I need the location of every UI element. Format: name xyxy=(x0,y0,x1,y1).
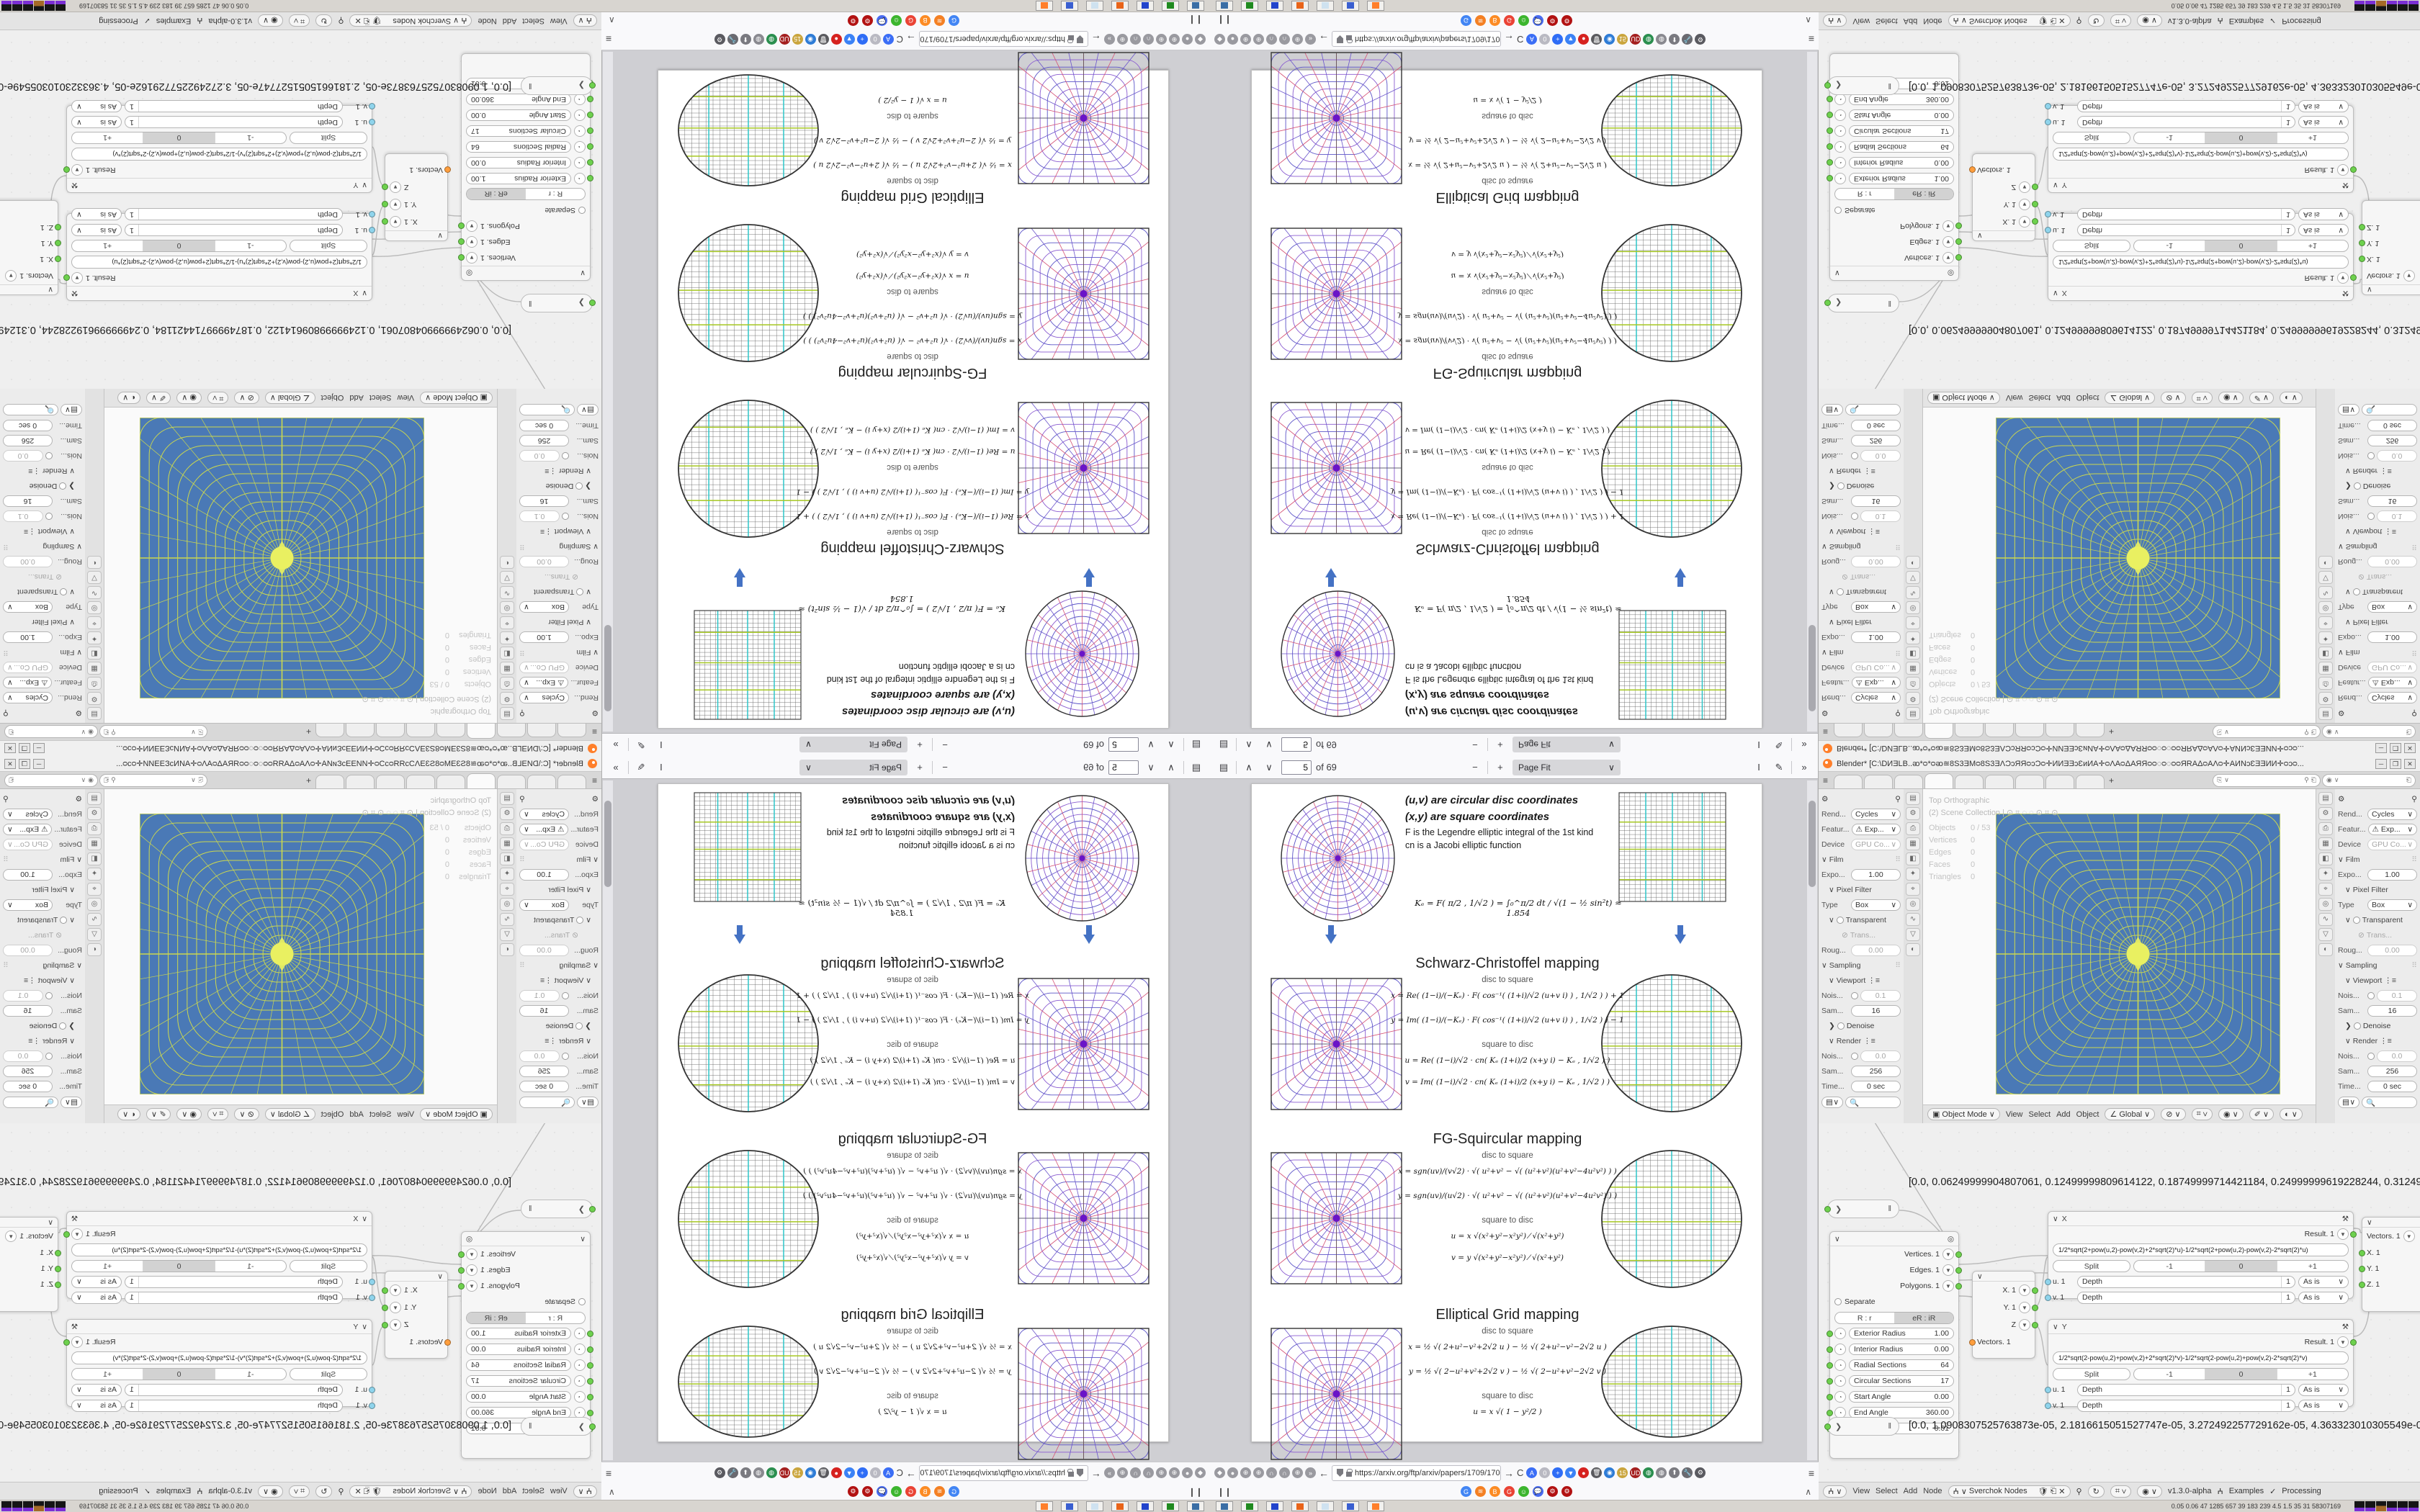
pin-icon[interactable]: ⚲ xyxy=(2411,795,2417,804)
scene-selector[interactable]: ⎘∨⚲⎗ xyxy=(2213,774,2321,787)
bookmark-icon[interactable]: B xyxy=(920,1486,931,1497)
render-samples-field[interactable]: 256 xyxy=(519,1066,569,1077)
overlays-button[interactable]: ◐ ∨ xyxy=(2280,392,2303,404)
bookmark-icon[interactable]: G xyxy=(1461,1486,1471,1497)
next-page-button[interactable]: ∨ xyxy=(1143,737,1159,753)
exposure-field[interactable]: 1.00 xyxy=(519,632,569,644)
workspace-tab-active[interactable] xyxy=(467,724,496,739)
collapsed-node[interactable]: ❯‖ xyxy=(521,1417,593,1436)
node-param-slider[interactable]: Exterior Radius1.00 xyxy=(1849,173,1954,184)
extension-icon[interactable]: ◍ xyxy=(1643,1467,1654,1478)
extension-icon[interactable]: UD xyxy=(1630,34,1641,45)
time-limit-field[interactable]: 0 sec xyxy=(3,1081,53,1092)
transparent-section[interactable]: Transparent xyxy=(1846,588,1886,597)
extension-icon[interactable]: 0 xyxy=(1539,34,1550,45)
sidebar-toggle-icon[interactable]: ▤ xyxy=(1216,737,1232,753)
menu-view[interactable]: View xyxy=(2006,394,2023,402)
film-section[interactable]: Film xyxy=(576,649,591,657)
formula-input[interactable]: 1/2*sqrt(2-pow(u,2)+pow(v,2)+2*sqrt(2)*v… xyxy=(2053,1351,2349,1364)
exposure-field[interactable]: 1.00 xyxy=(1851,632,1901,644)
properties-search-input[interactable]: 🔍 xyxy=(3,1097,58,1108)
properties-tab-icon[interactable]: ✦ xyxy=(1906,631,1920,644)
taskbar-app-icon[interactable] xyxy=(1367,1,1384,11)
close-button[interactable]: ✕ xyxy=(2404,759,2416,769)
add-workspace-button[interactable]: + xyxy=(2109,775,2114,786)
collapse-icon[interactable]: ∧ xyxy=(1805,1487,1811,1497)
draw-tool-icon[interactable]: ✎ xyxy=(633,737,649,753)
examples-menu[interactable]: Examples xyxy=(2229,1487,2264,1495)
properties-tab-icon[interactable]: ⎙ xyxy=(1906,822,1920,835)
previous-page-button[interactable]: ∧ xyxy=(1163,760,1179,775)
workspace-tab[interactable] xyxy=(1894,724,1923,737)
split-button[interactable]: Split xyxy=(2053,1368,2130,1380)
extension-icon[interactable]: ◍ xyxy=(1656,1467,1667,1478)
rescan-button[interactable]: ↻ xyxy=(2088,15,2105,27)
node-param-slider[interactable]: Interior Radius0.00 xyxy=(466,157,571,168)
properties-tab-icon[interactable]: ⎙ xyxy=(2318,822,2333,835)
extension-icon[interactable]: + xyxy=(1552,34,1563,45)
transparent-checkbox[interactable] xyxy=(576,917,583,924)
split-button[interactable]: Split xyxy=(2053,1260,2130,1272)
workspace-tab[interactable] xyxy=(1955,775,1984,788)
extension-icon[interactable]: ◆ xyxy=(1214,34,1225,45)
scene-selector[interactable]: ⎘∨⚲⎗ xyxy=(2213,726,2321,739)
film-section[interactable]: Film xyxy=(60,649,74,657)
taskbar-app-icon[interactable] xyxy=(1061,1,1078,11)
collapse-icon[interactable]: ∧ xyxy=(1805,16,1811,26)
split-button[interactable]: Split xyxy=(290,1368,367,1380)
url-bar[interactable]: https://arxiv.org/ftp/arxiv/papers/1709/… xyxy=(919,32,1088,48)
extension-icon[interactable]: ⊕ xyxy=(1169,34,1180,45)
bookmark-icon[interactable]: ⚙ xyxy=(848,15,859,26)
renderer-select[interactable]: Cycles∨ xyxy=(1851,693,1901,704)
collapsed-node[interactable]: ❯‖ xyxy=(1827,1417,1899,1436)
mode-selector[interactable]: ▣Object Mode∨ xyxy=(420,392,493,404)
pin-icon[interactable]: ⚲ xyxy=(519,795,525,804)
bookmark-icon[interactable]: B xyxy=(920,15,931,26)
workspace-tab[interactable] xyxy=(1894,775,1923,788)
properties-tab-icon[interactable]: ▤ xyxy=(87,707,102,720)
extension-icon[interactable]: 0 xyxy=(870,1467,881,1478)
node-param-slider[interactable]: Circular Sections17 xyxy=(466,125,571,137)
filter-button[interactable]: ▤∨ xyxy=(1821,1097,1843,1108)
workspace-tab[interactable] xyxy=(436,775,465,788)
render-sampling-section[interactable]: Render xyxy=(42,1037,67,1045)
viewport-samples-field[interactable]: 16 xyxy=(2367,496,2417,508)
sampling-section[interactable]: Sampling xyxy=(1829,961,1861,970)
device-select[interactable]: GPU Co...∨ xyxy=(3,839,53,850)
properties-search-input[interactable]: 🔍 xyxy=(519,404,575,415)
properties-tab-icon[interactable]: ✦ xyxy=(2318,868,2333,881)
menu-object[interactable]: Object xyxy=(321,394,344,402)
pixel-filter-section[interactable]: Pixel Filter xyxy=(32,886,67,894)
render-samples-field[interactable]: 256 xyxy=(2367,436,2417,447)
hamburger-icon[interactable]: ≡ xyxy=(592,727,597,737)
bookmark-icon[interactable]: G xyxy=(905,15,916,26)
extension-icon[interactable]: ⬆ xyxy=(740,1467,751,1478)
extension-icon[interactable]: + xyxy=(1552,1467,1563,1478)
menu-view[interactable]: View xyxy=(1852,17,1870,25)
render-sampling-section[interactable]: Render xyxy=(1837,467,1861,476)
extension-icon[interactable]: ◆ xyxy=(1195,34,1206,45)
filter-type-select[interactable]: Box∨ xyxy=(1851,602,1901,613)
annotate-button[interactable]: ✐ ∨ xyxy=(2249,392,2274,404)
filter-type-select[interactable]: Box∨ xyxy=(2367,602,2417,613)
node-param-slider[interactable]: Start Angle0.00 xyxy=(1849,109,1954,121)
pin-icon[interactable]: ⚲ xyxy=(1895,709,1901,718)
properties-tab-icon[interactable]: ⎙ xyxy=(1906,677,1920,690)
extension-icon[interactable]: ⊕ xyxy=(1117,34,1128,45)
asis-select[interactable]: As is∨ xyxy=(2298,117,2349,129)
extension-icon[interactable]: ∩ xyxy=(1266,1467,1277,1478)
menu-select[interactable]: Select xyxy=(1875,17,1898,25)
renderer-select[interactable]: Cycles∨ xyxy=(519,693,569,704)
transparent-section[interactable]: Transparent xyxy=(1846,916,1886,924)
url-bar[interactable]: https://arxiv.org/ftp/arxiv/papers/1709/… xyxy=(1332,1465,1501,1481)
properties-tab-icon[interactable]: ◧ xyxy=(2318,647,2333,660)
next-page-button[interactable]: ∨ xyxy=(1261,737,1277,753)
properties-tab-icon[interactable]: ⎙ xyxy=(87,822,102,835)
pixel-filter-section[interactable]: Pixel Filter xyxy=(2353,618,2388,627)
render-samples-field[interactable]: 256 xyxy=(3,436,53,447)
back-button[interactable]: ← xyxy=(1091,34,1101,45)
properties-tab-icon[interactable]: ⌖ xyxy=(87,616,102,629)
editor-type-button[interactable]: ⵄ ∨ xyxy=(573,1485,597,1498)
menu-view[interactable]: View xyxy=(2006,1110,2023,1119)
node-param-slider[interactable]: Circular Sections17 xyxy=(1849,125,1954,137)
properties-tab-icon[interactable]: ◎ xyxy=(500,601,514,614)
bookmark-icon[interactable]: 💬 xyxy=(1533,15,1543,26)
properties-tab-icon[interactable]: ▽ xyxy=(500,928,514,941)
exposure-field[interactable]: 1.00 xyxy=(1851,869,1901,881)
extension-icon[interactable]: 15 xyxy=(1617,1467,1628,1478)
feature-set-select[interactable]: ⚠ Exp...∨ xyxy=(3,678,52,689)
overlay-select[interactable]: ◉ ∨ xyxy=(2137,1485,2162,1498)
extension-icon[interactable]: ● xyxy=(831,34,842,45)
viewlayer-selector[interactable]: ◉∨⎗ xyxy=(2322,726,2416,739)
menu-select[interactable]: Select xyxy=(369,394,392,402)
editor-type-button[interactable]: ⵄ ∨ xyxy=(1823,15,1847,27)
forward-button[interactable]: → xyxy=(906,1467,916,1479)
snap-button[interactable]: ⊘ ∨ xyxy=(2161,392,2185,404)
properties-tab-icon[interactable]: ◎ xyxy=(1906,898,1920,911)
previous-page-button[interactable]: ∧ xyxy=(1241,760,1257,775)
menu-add[interactable]: Add xyxy=(2056,394,2071,402)
viewport-samples-field[interactable]: 16 xyxy=(1851,496,1901,508)
formula-input[interactable]: 1/2*sqrt(2+pow(u,2)-pow(v,2)+2*sqrt(2)*u… xyxy=(71,1243,367,1256)
properties-tab-icon[interactable]: ⎙ xyxy=(500,822,514,835)
properties-tab-icon[interactable]: ◐ xyxy=(2318,556,2333,569)
overlay-select[interactable]: ◉ ∨ xyxy=(258,1485,283,1498)
viewport-samples-field[interactable]: 16 xyxy=(3,496,53,508)
mode-selector[interactable]: ▣Object Mode∨ xyxy=(1927,392,2000,404)
feature-set-select[interactable]: ⚠ Exp...∨ xyxy=(519,678,568,689)
properties-tab-icon[interactable]: ⚙ xyxy=(87,692,102,705)
snap-select[interactable]: ⌗ ∨ xyxy=(2110,1485,2131,1498)
workspace-tab[interactable] xyxy=(406,724,435,737)
properties-tab-icon[interactable]: ◎ xyxy=(500,898,514,911)
taskbar-app-icon[interactable] xyxy=(1137,1501,1154,1511)
transparent-section[interactable]: Transparent xyxy=(2362,588,2403,597)
filter-type-select[interactable]: Box∨ xyxy=(519,899,569,911)
menu-add[interactable]: Add xyxy=(349,394,364,402)
minimize-button[interactable]: ─ xyxy=(33,759,45,769)
viewport-sampling-section[interactable]: Viewport xyxy=(38,528,68,536)
properties-tab-icon[interactable]: ⌖ xyxy=(2318,616,2333,629)
depth-field[interactable]: Depth1 xyxy=(2077,101,2295,113)
viewport-sampling-section[interactable]: Viewport xyxy=(38,976,68,985)
feature-set-select[interactable]: ⚠ Exp...∨ xyxy=(519,824,568,835)
url-bar[interactable]: https://arxiv.org/ftp/arxiv/papers/1709/… xyxy=(919,1465,1088,1481)
menu-add[interactable]: Add xyxy=(349,1110,364,1119)
time-limit-field[interactable]: 0 sec xyxy=(1851,420,1901,432)
properties-tab-icon[interactable]: ◐ xyxy=(1906,556,1920,569)
viewport-sampling-section[interactable]: Viewport xyxy=(555,976,584,985)
extension-icon[interactable]: 15 xyxy=(792,34,803,45)
properties-tab-icon[interactable]: ▤ xyxy=(2318,707,2333,720)
scrollbar-thumb[interactable] xyxy=(604,801,611,887)
extension-icon[interactable]: ⊕ xyxy=(1292,1467,1303,1478)
snap-button[interactable]: ⊘ ∨ xyxy=(234,1108,259,1120)
properties-tab-icon[interactable]: ∿ xyxy=(87,586,102,599)
time-limit-field[interactable]: 0 sec xyxy=(519,1081,569,1092)
render-samples-field[interactable]: 256 xyxy=(519,436,569,447)
render-sampling-section[interactable]: Render xyxy=(2353,1037,2378,1045)
properties-tab-icon[interactable]: ⚙ xyxy=(500,807,514,820)
menu-node[interactable]: Node xyxy=(1923,17,1942,25)
viewlayer-selector[interactable]: ◉∨⎗ xyxy=(2322,774,2416,787)
radius-mode-segmented[interactable]: R : reR : iR xyxy=(1834,189,1954,201)
sampling-section[interactable]: Sampling xyxy=(560,543,591,552)
vector-out-node[interactable]: ∨ Vectors. 1▼ X. 1 Y. 1 Z. 1 xyxy=(2362,200,2420,295)
pause-icon[interactable]: ❙❙ xyxy=(1217,16,1232,26)
bookmark-icon[interactable]: ⚙ xyxy=(1561,1486,1572,1497)
zoom-select[interactable]: Page Fit∨ xyxy=(1512,760,1621,775)
taskbar-app-icon[interactable] xyxy=(1266,1501,1283,1511)
extension-icon[interactable]: 0 xyxy=(870,34,881,45)
sverchok-node-editor[interactable]: [0.0, 0.06249999904807061, 0.12499999809… xyxy=(0,12,601,389)
blender-title-bar[interactable]: Blender* [C:\DИƎLB..ᴔ*ᴑ*ᴑᴔ≊8S3ƎMᴑ8S3ƎΛƆᴐ… xyxy=(0,756,601,772)
extension-icon[interactable]: ◉ xyxy=(1604,1467,1615,1478)
film-section[interactable]: Film xyxy=(1829,649,1844,657)
properties-tab-icon[interactable]: ◐ xyxy=(2318,943,2333,956)
next-page-button[interactable]: ∨ xyxy=(1143,760,1159,775)
node-tree-selector[interactable]: ⵄ ∨Sverchok Nodes🛡⎗✕ xyxy=(1948,1485,2071,1498)
bookmark-icon[interactable]: ☺ xyxy=(1518,1486,1529,1497)
feature-set-select[interactable]: ⚠ Exp...∨ xyxy=(3,824,52,835)
vector-in-node[interactable]: ∨ X. 1▼ Y. 1▼ Z▼ Vectors. 1 xyxy=(385,1271,448,1359)
extension-icon[interactable]: ● xyxy=(831,1467,842,1478)
depth-field[interactable]: Depth1 xyxy=(125,225,343,237)
reload-button[interactable]: C xyxy=(897,34,903,45)
taskbar-app-icon[interactable] xyxy=(1216,1,1233,11)
feature-set-select[interactable]: ⚠ Exp...∨ xyxy=(2368,678,2417,689)
depth-field[interactable]: Depth1 xyxy=(125,117,343,129)
viewport-3d[interactable]: Top Orthographic (2) Scene Collection | … xyxy=(1923,408,2316,723)
node-param-slider[interactable]: Radial Sections64 xyxy=(466,141,571,153)
device-select[interactable]: GPU Co...∨ xyxy=(1851,662,1901,674)
render-samples-field[interactable]: 256 xyxy=(1851,436,1901,447)
properties-tab-icon[interactable]: ✦ xyxy=(1906,868,1920,881)
workspace-tab[interactable] xyxy=(2015,724,2044,737)
properties-tab-icon[interactable]: ▦ xyxy=(2318,837,2333,850)
scrollbar-thumb[interactable] xyxy=(604,625,611,711)
formula-node-y[interactable]: ∨Y⚒ Result. 1▼ 1/2*sqrt(2-pow(u,2)+pow(v… xyxy=(66,1319,372,1407)
taskbar-app-icon[interactable] xyxy=(1342,1501,1359,1511)
formula-node-x[interactable]: ∨X⚒ Result. 1▼ 1/2*sqrt(2+pow(u,2)-pow(v… xyxy=(2048,1211,2354,1299)
render-sampling-section[interactable]: Render xyxy=(1837,1037,1861,1045)
taskbar-app-icon[interactable] xyxy=(1061,1501,1078,1511)
extension-icon[interactable]: ⊕ xyxy=(1240,1467,1251,1478)
workspace-tab[interactable] xyxy=(1864,775,1893,788)
bookmark-icon[interactable]: B xyxy=(1489,15,1500,26)
menu-select[interactable]: Select xyxy=(2029,394,2051,402)
properties-tab-icon[interactable]: ⎙ xyxy=(2318,677,2333,690)
proportional-edit-button[interactable]: ◉ ∨ xyxy=(2218,1108,2244,1120)
formula-input[interactable]: 1/2*sqrt(2+pow(u,2)-pow(v,2)+2*sqrt(2)*u… xyxy=(2053,256,2349,269)
viewport-sampling-section[interactable]: Viewport xyxy=(2353,976,2383,985)
extension-icon[interactable]: ⚙ xyxy=(1695,34,1706,45)
annotate-button[interactable]: ✐ ∨ xyxy=(146,392,171,404)
bookmark-icon[interactable]: ☺ xyxy=(891,15,902,26)
renderer-select[interactable]: Cycles∨ xyxy=(2367,809,2417,820)
denoise-checkbox[interactable] xyxy=(59,1022,66,1030)
rescan-button[interactable]: ↻ xyxy=(2088,1485,2105,1498)
bookmark-icon[interactable]: ⚙ xyxy=(1561,15,1572,26)
snap-button[interactable]: ⊘ ∨ xyxy=(2161,1108,2185,1120)
depth-field[interactable]: Depth1 xyxy=(125,1292,343,1304)
extension-icon[interactable]: 🔧 xyxy=(1682,1467,1693,1478)
extension-icon[interactable]: ▼ xyxy=(1565,34,1576,45)
workspace-tab[interactable] xyxy=(497,775,526,788)
minimize-button[interactable]: ─ xyxy=(2375,759,2387,769)
viewport-sampling-section[interactable]: Viewport xyxy=(555,528,584,536)
add-workspace-button[interactable]: + xyxy=(2109,727,2114,737)
extension-icon[interactable]: ◉ xyxy=(805,1467,816,1478)
properties-tab-icon[interactable]: ✦ xyxy=(87,631,102,644)
asis-select[interactable]: As is∨ xyxy=(71,101,122,113)
sampling-section[interactable]: Sampling xyxy=(43,961,75,970)
extension-icon[interactable]: ∩ xyxy=(1279,34,1290,45)
menu-view[interactable]: View xyxy=(398,394,415,402)
filter-button[interactable]: ▤∨ xyxy=(1821,404,1843,415)
back-button[interactable]: ← xyxy=(1319,1467,1329,1479)
workspace-tab[interactable] xyxy=(376,775,405,788)
extension-icon[interactable]: ● xyxy=(1182,1467,1193,1478)
extension-icon[interactable]: ◍ xyxy=(753,1467,764,1478)
properties-tab-icon[interactable]: ✦ xyxy=(500,631,514,644)
extension-icon[interactable]: ⚙ xyxy=(714,34,725,45)
asis-select[interactable]: As is∨ xyxy=(71,1384,122,1396)
extension-icon[interactable]: ⊕ xyxy=(1253,1467,1264,1478)
sverchok-node-editor[interactable]: [0.0, 0.06249999904807061, 0.12499999809… xyxy=(1819,12,2420,389)
taskbar-app-icon[interactable] xyxy=(1317,1501,1334,1511)
bookmark-icon[interactable]: 💬 xyxy=(877,15,887,26)
bookmark-icon[interactable]: 💬 xyxy=(877,1486,887,1497)
asis-select[interactable]: As is∨ xyxy=(2298,225,2349,237)
bookmark-icon[interactable]: ⚙ xyxy=(862,1486,873,1497)
depth-field[interactable]: Depth1 xyxy=(2077,1384,2295,1396)
denoise-checkbox[interactable] xyxy=(575,1022,583,1030)
add-workspace-button[interactable]: + xyxy=(306,775,311,786)
toolbar-more-icon[interactable]: » xyxy=(1796,760,1812,775)
transparent-section[interactable]: Transparent xyxy=(534,916,574,924)
overlay-select[interactable]: ◉ ∨ xyxy=(2137,15,2162,27)
menu-add[interactable]: Add xyxy=(2056,1110,2071,1119)
asis-select[interactable]: As is∨ xyxy=(2298,1276,2349,1288)
bookmark-icon[interactable]: ⚙ xyxy=(862,15,873,26)
time-limit-field[interactable]: 0 sec xyxy=(3,420,53,432)
processing-label[interactable]: Processing xyxy=(2282,17,2321,25)
formula-node-y[interactable]: ∨Y⚒ Result. 1▼ 1/2*sqrt(2-pow(u,2)+pow(v… xyxy=(66,105,372,193)
node-param-slider[interactable]: Circular Sections17 xyxy=(1849,1375,1954,1387)
extension-icon[interactable]: 🗑 xyxy=(818,1467,829,1478)
extension-icon[interactable]: ◉ xyxy=(1604,34,1615,45)
extension-icon[interactable]: ⊕ xyxy=(1156,34,1167,45)
properties-tab-icon[interactable]: ∿ xyxy=(1906,913,1920,926)
sampling-section[interactable]: Sampling xyxy=(1829,543,1861,552)
extension-icon[interactable]: ◍ xyxy=(1656,34,1667,45)
transparent-checkbox[interactable] xyxy=(60,589,67,596)
zoom-in-button[interactable]: + xyxy=(1492,760,1508,775)
node-param-slider[interactable]: End Angle360.00 xyxy=(466,94,571,105)
properties-tab-icon[interactable]: ⚙ xyxy=(2318,807,2333,820)
taskbar-app-icon[interactable] xyxy=(1317,1,1334,11)
extension-icon[interactable]: ● xyxy=(1578,1467,1589,1478)
extension-icon[interactable]: » xyxy=(1104,34,1115,45)
extension-icon[interactable]: 15 xyxy=(792,1467,803,1478)
menu-add[interactable]: Add xyxy=(503,17,517,25)
properties-tab-icon[interactable]: ◧ xyxy=(2318,852,2333,865)
properties-tab-icon[interactable]: ⌖ xyxy=(500,616,514,629)
collapse-icon[interactable]: ∧ xyxy=(609,1487,615,1497)
workspace-tab[interactable] xyxy=(315,775,344,788)
properties-tab-icon[interactable]: ▦ xyxy=(1906,662,1920,675)
pause-icon[interactable]: ❙❙ xyxy=(1217,1487,1232,1497)
asis-select[interactable]: As is∨ xyxy=(71,1400,122,1412)
formula-input[interactable]: 1/2*sqrt(2-pow(u,2)+pow(v,2)+2*sqrt(2)*v… xyxy=(71,1351,367,1364)
vector-out-node[interactable]: ∨ Vectors. 1▼ X. 1 Y. 1 Z. 1 xyxy=(2362,1217,2420,1312)
formula-input[interactable]: 1/2*sqrt(2+pow(u,2)-pow(v,2)+2*sqrt(2)*u… xyxy=(71,256,367,269)
render-sampling-section[interactable]: Render xyxy=(2353,467,2378,476)
properties-tab-icon[interactable]: ◧ xyxy=(500,852,514,865)
node-param-slider[interactable]: Interior Radius0.00 xyxy=(1849,157,1954,168)
workspace-tab[interactable] xyxy=(497,724,526,737)
viewport-sampling-section[interactable]: Viewport xyxy=(2353,528,2383,536)
exposure-field[interactable]: 1.00 xyxy=(519,869,569,881)
feature-set-select[interactable]: ⚠ Exp...∨ xyxy=(1852,678,1901,689)
vector-out-node[interactable]: ∨ Vectors. 1▼ X. 1 Y. 1 Z. 1 xyxy=(0,200,58,295)
previous-page-button[interactable]: ∧ xyxy=(1163,737,1179,753)
page-number-input[interactable]: 5 xyxy=(1108,738,1139,752)
pixel-filter-section[interactable]: Pixel Filter xyxy=(2353,886,2388,894)
page-number-input[interactable]: 5 xyxy=(1108,760,1139,775)
mode-selector[interactable]: ▣Object Mode∨ xyxy=(420,1108,493,1120)
properties-tab-icon[interactable]: ⎙ xyxy=(500,677,514,690)
toolbar-more-icon[interactable]: » xyxy=(608,737,624,753)
overlays-button[interactable]: ◐ ∨ xyxy=(117,392,140,404)
collapsed-node[interactable]: ❯‖ xyxy=(521,294,593,312)
previous-page-button[interactable]: ∧ xyxy=(1241,737,1257,753)
text-selection-tool-icon[interactable]: I xyxy=(1751,737,1767,753)
filter-button[interactable]: ▤∨ xyxy=(2338,1097,2359,1108)
extension-icon[interactable]: UD xyxy=(1630,1467,1641,1478)
menu-select[interactable]: Select xyxy=(522,17,544,25)
menu-select[interactable]: Select xyxy=(369,1110,392,1119)
pdf-content-area[interactable]: (u,v) are circular disc coordinates (x,y… xyxy=(602,50,1210,733)
pixel-filter-section[interactable]: Pixel Filter xyxy=(548,618,583,627)
magnet-snap-button[interactable]: ⌗ ∨ xyxy=(2192,1108,2213,1120)
